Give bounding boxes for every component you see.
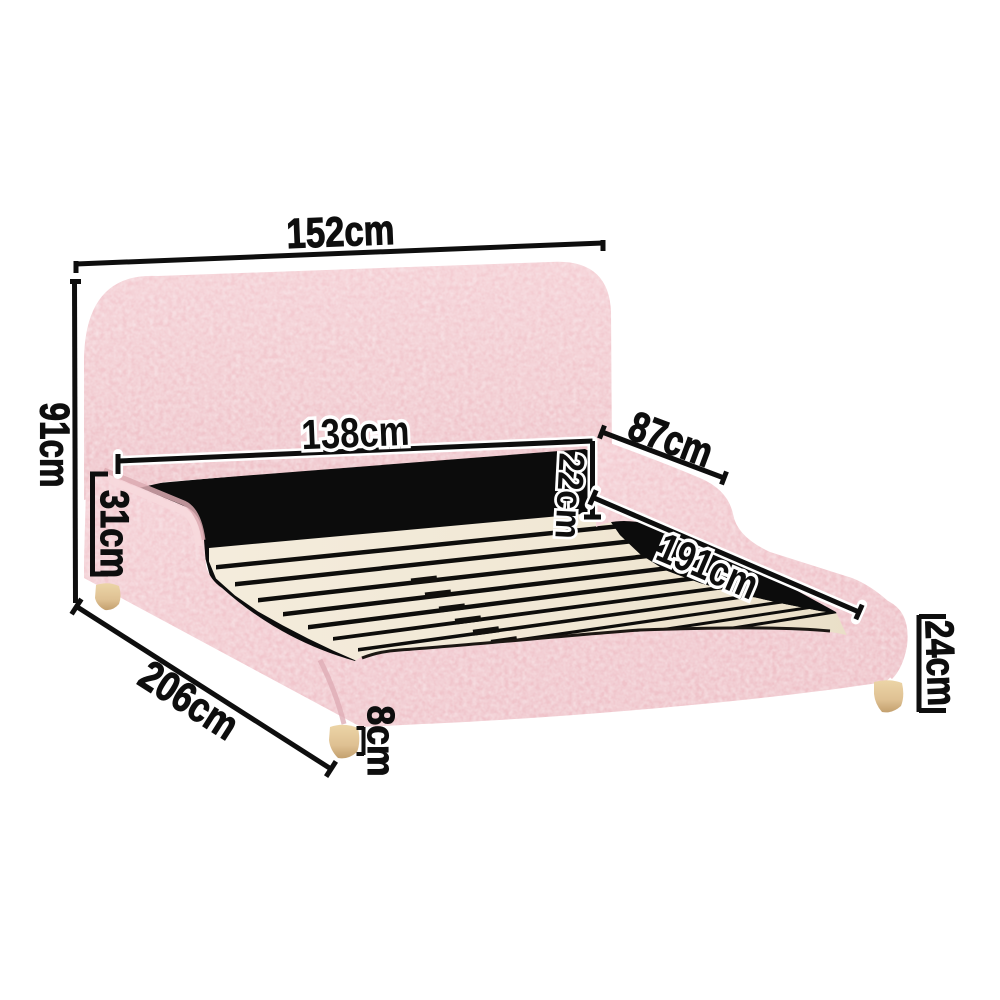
svg-text:91cm: 91cm bbox=[32, 403, 79, 488]
svg-text:138cm: 138cm bbox=[300, 407, 410, 458]
svg-text:22cm: 22cm bbox=[547, 452, 592, 540]
svg-text:152cm: 152cm bbox=[286, 206, 396, 257]
svg-text:31cm: 31cm bbox=[92, 490, 136, 578]
svg-text:24cm: 24cm bbox=[917, 619, 964, 706]
svg-text:8cm: 8cm bbox=[359, 706, 401, 777]
